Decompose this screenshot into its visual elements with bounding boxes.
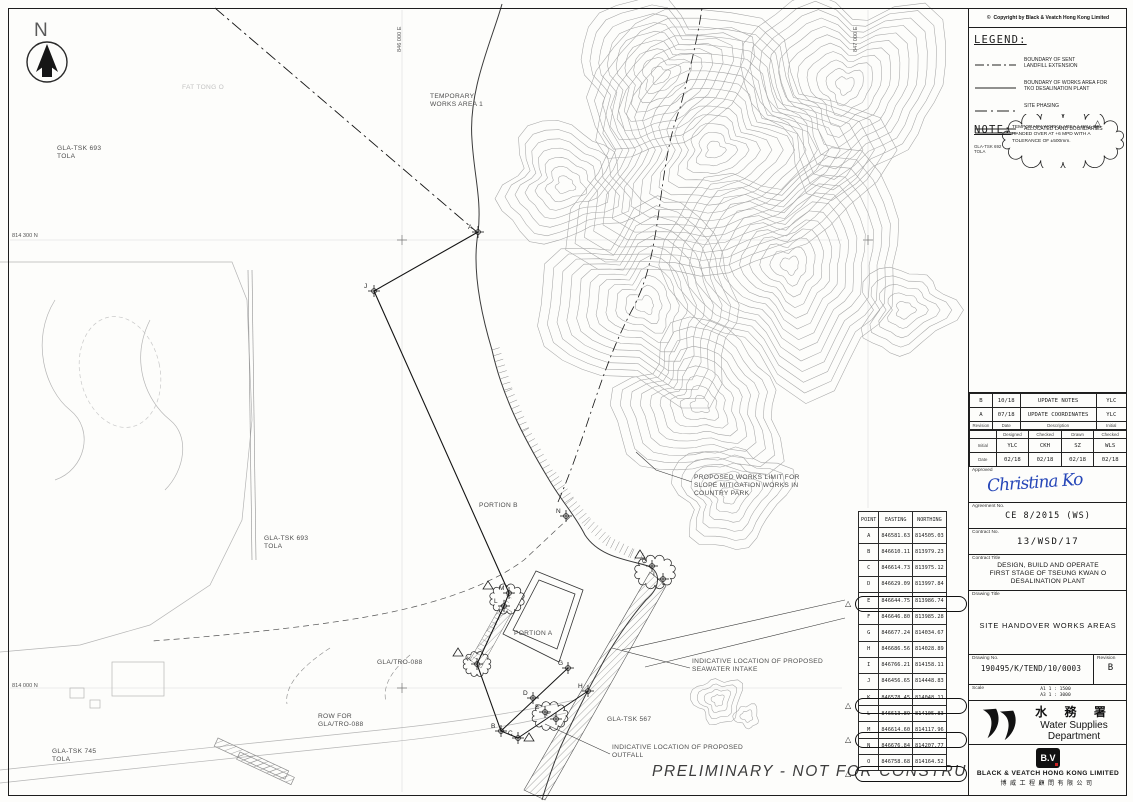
sheet-border (8, 8, 1127, 796)
drawing-sheet: AJNOIMLKBCDEFGH TEMPORARY WORKS AREA 1PO… (0, 0, 1133, 802)
